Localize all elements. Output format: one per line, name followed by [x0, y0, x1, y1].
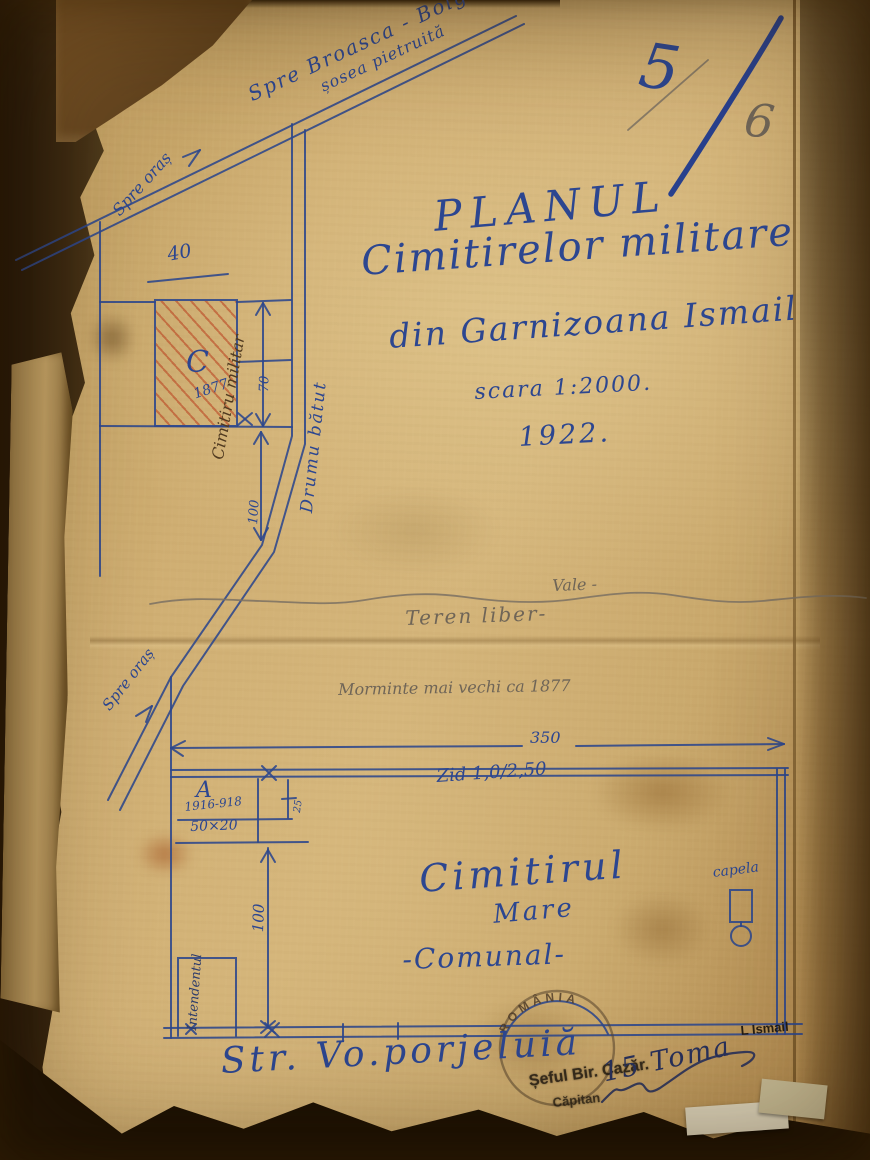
dimension-40-label: 40 — [166, 242, 193, 265]
chapel-icon — [730, 890, 752, 946]
dimension-100-upper-label: 100 — [247, 499, 262, 525]
dimension-350-label: 350 — [530, 730, 561, 746]
plot-a-size: 50×20 — [190, 818, 238, 834]
free-terrain-label: Teren liber- — [405, 603, 548, 628]
scanned-plan-page: ROMÂNIA 5 6 PLANUL Cimitirelor militare … — [0, 0, 870, 1160]
plot-a-side-dimension: 25 — [293, 799, 305, 813]
dimension-70-label: 70 — [258, 375, 272, 392]
dimension-70 — [237, 300, 291, 426]
plan-line-drawing: ROMÂNIA — [0, 0, 870, 1160]
communal-cemetery-name-3: -Comunal- — [402, 940, 566, 974]
plot-c-letter: C — [186, 348, 209, 378]
plan-year: 1922. — [518, 419, 612, 451]
dimension-350 — [171, 738, 784, 756]
paper-sliver-small — [758, 1079, 827, 1120]
dimension-100-lower-label: 100 — [251, 903, 267, 932]
ismail-unit-stamp: L Ismail — [740, 1020, 789, 1037]
old-graves-note: Morminte mai vechi ca 1877 — [338, 678, 571, 698]
communal-cemetery-name-2: Mare — [492, 895, 576, 928]
valley-label: Vale - — [552, 576, 597, 594]
dimension-100-lower — [261, 848, 275, 1033]
beaten-track-lines — [108, 124, 305, 810]
